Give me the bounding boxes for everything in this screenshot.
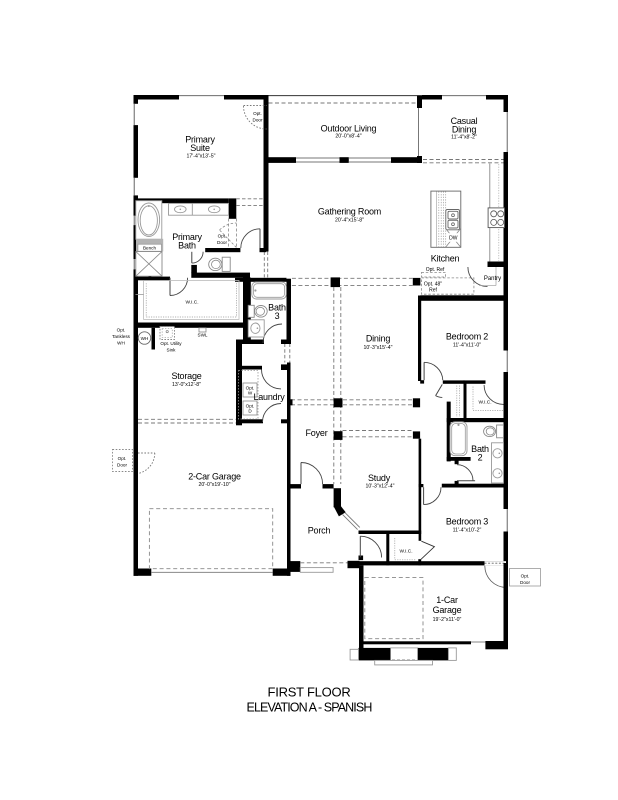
svg-text:WH: WH bbox=[117, 341, 125, 346]
svg-text:WH: WH bbox=[141, 336, 149, 341]
svg-text:Gathering Room: Gathering Room bbox=[318, 206, 381, 216]
svg-text:Dining: Dining bbox=[452, 124, 477, 134]
svg-text:W.I.C.: W.I.C. bbox=[399, 549, 412, 555]
svg-text:Opt.: Opt. bbox=[246, 403, 255, 408]
svg-text:19'-2"x11'-0": 19'-2"x11'-0" bbox=[433, 617, 462, 623]
svg-text:Door: Door bbox=[217, 240, 227, 245]
svg-text:SWL: SWL bbox=[198, 333, 208, 338]
svg-text:10'-3"x12'-4": 10'-3"x12'-4" bbox=[365, 484, 394, 490]
svg-text:Pantry: Pantry bbox=[484, 276, 501, 282]
svg-text:W.I.C.: W.I.C. bbox=[185, 300, 198, 306]
svg-text:20'-4"x15'-8": 20'-4"x15'-8" bbox=[335, 218, 364, 224]
svg-text:Foyer: Foyer bbox=[305, 428, 327, 438]
svg-text:W.I.C.: W.I.C. bbox=[478, 400, 491, 406]
svg-text:20'-0"x8'-4": 20'-0"x8'-4" bbox=[335, 134, 361, 140]
svg-text:11'-4"x11'-0": 11'-4"x11'-0" bbox=[453, 343, 481, 349]
svg-text:Bath: Bath bbox=[178, 240, 196, 250]
svg-text:Sink: Sink bbox=[167, 348, 177, 353]
svg-text:Opt.: Opt. bbox=[521, 574, 530, 579]
svg-text:11'-4"x8'-2": 11'-4"x8'-2" bbox=[451, 135, 477, 141]
svg-text:10'-3"x15'-4": 10'-3"x15'-4" bbox=[363, 345, 392, 351]
svg-text:Kitchen: Kitchen bbox=[431, 253, 460, 263]
svg-text:Outdoor Living: Outdoor Living bbox=[321, 123, 377, 133]
svg-text:Door: Door bbox=[117, 463, 127, 468]
svg-text:3: 3 bbox=[275, 311, 280, 321]
svg-text:1-Car: 1-Car bbox=[436, 595, 458, 605]
svg-text:Bedroom 3: Bedroom 3 bbox=[446, 516, 488, 526]
svg-text:Storage: Storage bbox=[171, 371, 201, 381]
svg-text:Bench: Bench bbox=[143, 245, 156, 250]
svg-text:Door: Door bbox=[253, 118, 263, 123]
svg-text:20'-0"x19'-10": 20'-0"x19'-10" bbox=[199, 482, 231, 488]
svg-text:DW: DW bbox=[449, 236, 458, 242]
svg-text:Dining: Dining bbox=[366, 333, 391, 343]
svg-text:Laundry: Laundry bbox=[253, 392, 285, 402]
svg-text:ELEVATION A - SPANISH: ELEVATION A - SPANISH bbox=[247, 701, 373, 715]
svg-text:Ref: Ref bbox=[429, 287, 437, 293]
svg-text:W: W bbox=[248, 391, 253, 396]
svg-text:Opt.: Opt. bbox=[246, 385, 255, 390]
svg-text:Opt.: Opt. bbox=[253, 111, 262, 116]
svg-text:Opt.: Opt. bbox=[118, 456, 127, 461]
svg-text:Opt. Ref: Opt. Ref bbox=[426, 267, 445, 273]
svg-text:Door: Door bbox=[520, 580, 530, 585]
svg-text:Garage: Garage bbox=[433, 605, 462, 615]
svg-text:11'-4"x10'-2": 11'-4"x10'-2" bbox=[453, 528, 482, 534]
svg-text:Tankless: Tankless bbox=[112, 334, 131, 339]
svg-text:Porch: Porch bbox=[308, 525, 331, 535]
svg-text:Study: Study bbox=[368, 473, 391, 483]
svg-text:17'-4"x13'-5": 17'-4"x13'-5" bbox=[186, 154, 215, 160]
svg-text:Opt.: Opt. bbox=[117, 328, 126, 333]
svg-text:Bedroom 2: Bedroom 2 bbox=[446, 331, 488, 341]
svg-text:2-Car Garage: 2-Car Garage bbox=[188, 471, 241, 481]
svg-text:13'-0"x12'-8": 13'-0"x12'-8" bbox=[172, 382, 201, 388]
svg-text:Opt.: Opt. bbox=[218, 234, 227, 239]
svg-text:Suite: Suite bbox=[190, 143, 210, 153]
svg-text:2: 2 bbox=[478, 452, 483, 462]
svg-text:Opt. Utility: Opt. Utility bbox=[160, 341, 182, 346]
svg-text:FIRST FLOOR: FIRST FLOOR bbox=[268, 685, 351, 700]
